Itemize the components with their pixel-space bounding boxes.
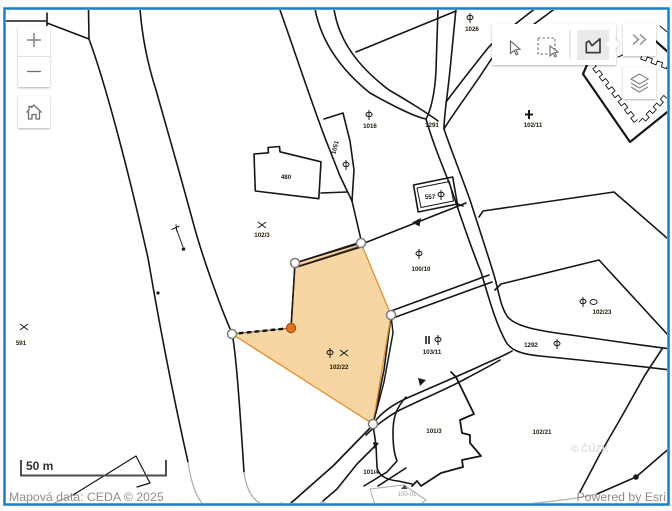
svg-text:1292: 1292 xyxy=(524,342,538,349)
svg-text:1016: 1016 xyxy=(363,123,377,130)
svg-text:102/21: 102/21 xyxy=(533,429,552,436)
svg-text:102/11: 102/11 xyxy=(524,122,543,129)
svg-text:591: 591 xyxy=(16,340,27,347)
svg-text:557: 557 xyxy=(425,194,436,201)
svg-text:1026: 1026 xyxy=(465,26,479,33)
svg-text:101/4: 101/4 xyxy=(363,469,379,476)
svg-text:1291: 1291 xyxy=(425,122,439,129)
svg-text:Mapová data: CEDA © 2025: Mapová data: CEDA © 2025 xyxy=(9,490,164,504)
svg-text:480: 480 xyxy=(281,174,292,181)
svg-text:101/3: 101/3 xyxy=(426,428,442,435)
svg-text:102/22: 102/22 xyxy=(330,364,349,371)
svg-text:100-01: 100-01 xyxy=(398,492,417,498)
svg-text:100/10: 100/10 xyxy=(412,266,431,273)
svg-text:103/11: 103/11 xyxy=(423,349,442,356)
svg-text:102/3: 102/3 xyxy=(254,232,270,239)
svg-text:50 m: 50 m xyxy=(26,459,53,473)
svg-text:Powered by Esri: Powered by Esri xyxy=(576,490,666,504)
svg-text:© ČÚZK: © ČÚZK xyxy=(571,442,610,455)
svg-text:102/23: 102/23 xyxy=(593,309,612,316)
